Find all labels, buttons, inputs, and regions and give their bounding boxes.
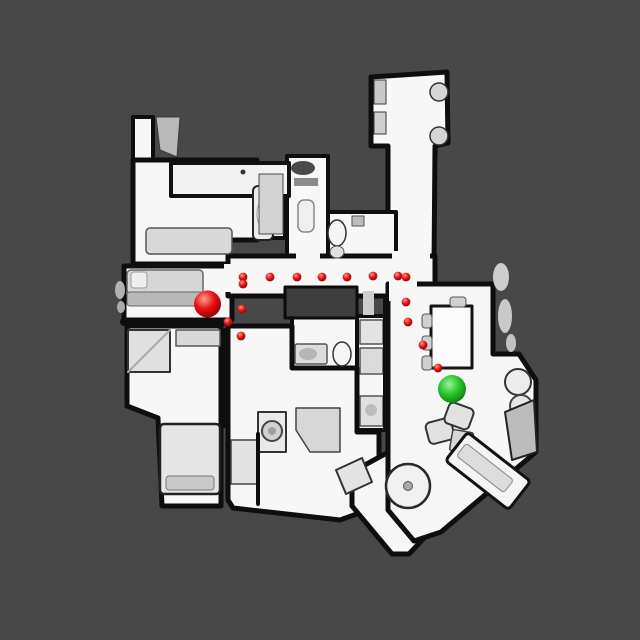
path-dot-13	[434, 364, 443, 373]
door-opening-shaft-living	[389, 280, 417, 301]
topdown-map	[0, 0, 640, 640]
bench-center-bottom	[231, 440, 257, 484]
armchair-right-1	[505, 369, 531, 395]
scan-debris-right-2	[498, 299, 512, 333]
desk-right	[505, 400, 537, 460]
door-opening-couchroom-corridor	[224, 264, 238, 292]
table-box-knob	[241, 170, 246, 175]
scan-debris-right-3	[506, 334, 516, 352]
kitchen-appliance-2	[360, 348, 383, 374]
hall-shelf	[294, 178, 318, 186]
path-dot-8	[394, 272, 403, 281]
path-dot-10	[402, 298, 411, 307]
viewport	[0, 0, 640, 640]
sofa-upper-room	[146, 228, 232, 254]
path-dot-6	[343, 273, 352, 282]
closet-shelf	[259, 174, 283, 234]
path-dot-4	[293, 273, 302, 282]
goal-marker	[438, 375, 466, 403]
dining-chair-1	[422, 314, 432, 328]
sink-upper-bath	[352, 216, 364, 226]
start-marker	[194, 291, 221, 318]
path-dot-5	[318, 273, 327, 282]
chamber-shelf-2	[374, 112, 386, 134]
dresser-bedroom	[176, 330, 220, 346]
toilet-upper-bath	[328, 220, 346, 246]
bath-toilet	[333, 342, 351, 366]
washer-door-center	[268, 427, 276, 435]
path-dot-14	[238, 305, 247, 314]
path-dot-2	[239, 280, 248, 289]
path-dot-16	[237, 332, 246, 341]
chamber-chair-2	[430, 127, 448, 145]
door-opening-hall-corridor	[296, 252, 320, 266]
path-dot-9	[402, 273, 411, 282]
path-dot-7	[369, 272, 378, 281]
kitchen-appliance-knob	[365, 404, 377, 416]
toilet-tank-upper-bath	[330, 246, 344, 258]
island-light-patch	[363, 291, 374, 315]
bath-sink	[299, 348, 317, 360]
door-opening-shaft-top	[392, 251, 430, 271]
chamber-shelf-1	[374, 80, 386, 104]
chamber-chair-1	[430, 83, 448, 101]
dark-island-block	[285, 287, 357, 318]
room-upper-left-nook	[133, 117, 153, 162]
path-dot-11	[404, 318, 413, 327]
scan-debris-right-1	[493, 263, 509, 291]
scan-debris-left-2	[117, 301, 125, 313]
kitchen-appliance-1	[360, 320, 383, 344]
path-dot-15	[224, 318, 233, 327]
dining-chair-4	[450, 297, 466, 307]
couch-start-room-seat	[127, 292, 203, 306]
bed-large-pillow	[166, 476, 214, 490]
dining-chair-3	[422, 356, 432, 370]
path-dot-3	[266, 273, 275, 282]
hall-dark-fixture	[291, 161, 315, 175]
hall-cabinet	[298, 200, 314, 232]
round-table-tail-center	[404, 482, 413, 491]
couch-pillow	[131, 272, 147, 288]
path-dot-12	[419, 341, 428, 350]
scan-debris-left-1	[115, 281, 125, 299]
dining-table-living	[431, 306, 472, 368]
